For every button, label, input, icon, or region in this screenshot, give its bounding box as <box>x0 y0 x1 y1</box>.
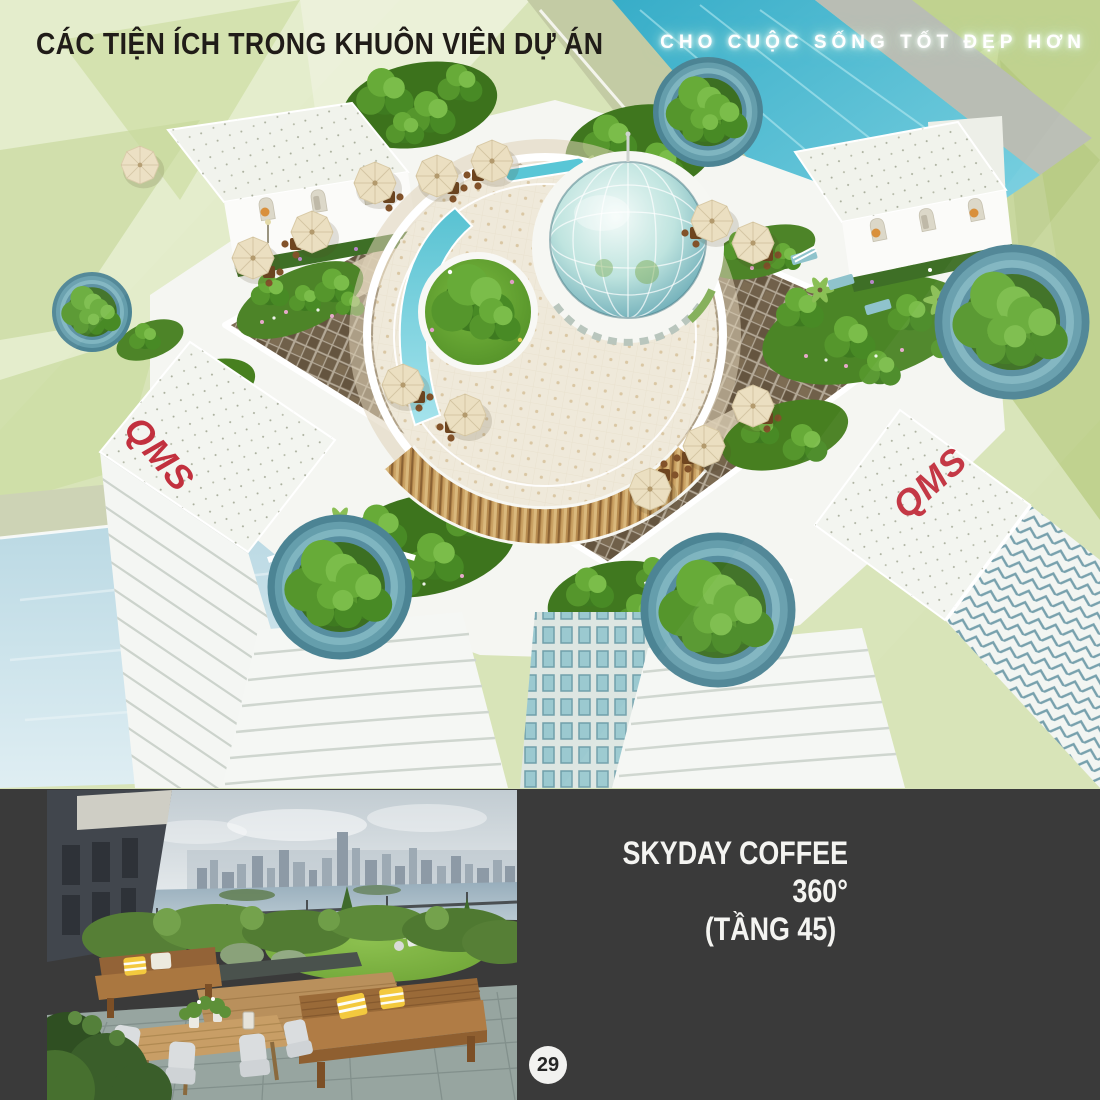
feature-caption: SKYDAY COFFEE 360° (TẦNG 45) <box>599 835 848 948</box>
page-title: CÁC TIỆN ÍCH TRONG KHUÔN VIÊN DỰ ÁN <box>36 26 603 62</box>
tagline: CHO CUỘC SỐNG TỐT ĐẸP HƠN <box>660 32 1086 54</box>
aerial-masterplan-render: QMS QMS <box>0 0 1100 789</box>
brochure-page: QMS QMS <box>0 0 1100 1100</box>
page-number-badge: 29 <box>529 1046 567 1084</box>
masterplan-render-section: QMS QMS <box>0 0 1100 789</box>
feature-caption-line-1: SKYDAY COFFEE 360° <box>599 835 848 911</box>
terrace-photo-illustration <box>47 790 517 1100</box>
info-band: SKYDAY COFFEE 360° (TẦNG 45) 29 <box>0 789 1100 1100</box>
terrace-photo <box>47 790 517 1100</box>
central-planter <box>418 252 538 372</box>
feature-caption-line-2: (TẦNG 45) <box>599 911 848 949</box>
